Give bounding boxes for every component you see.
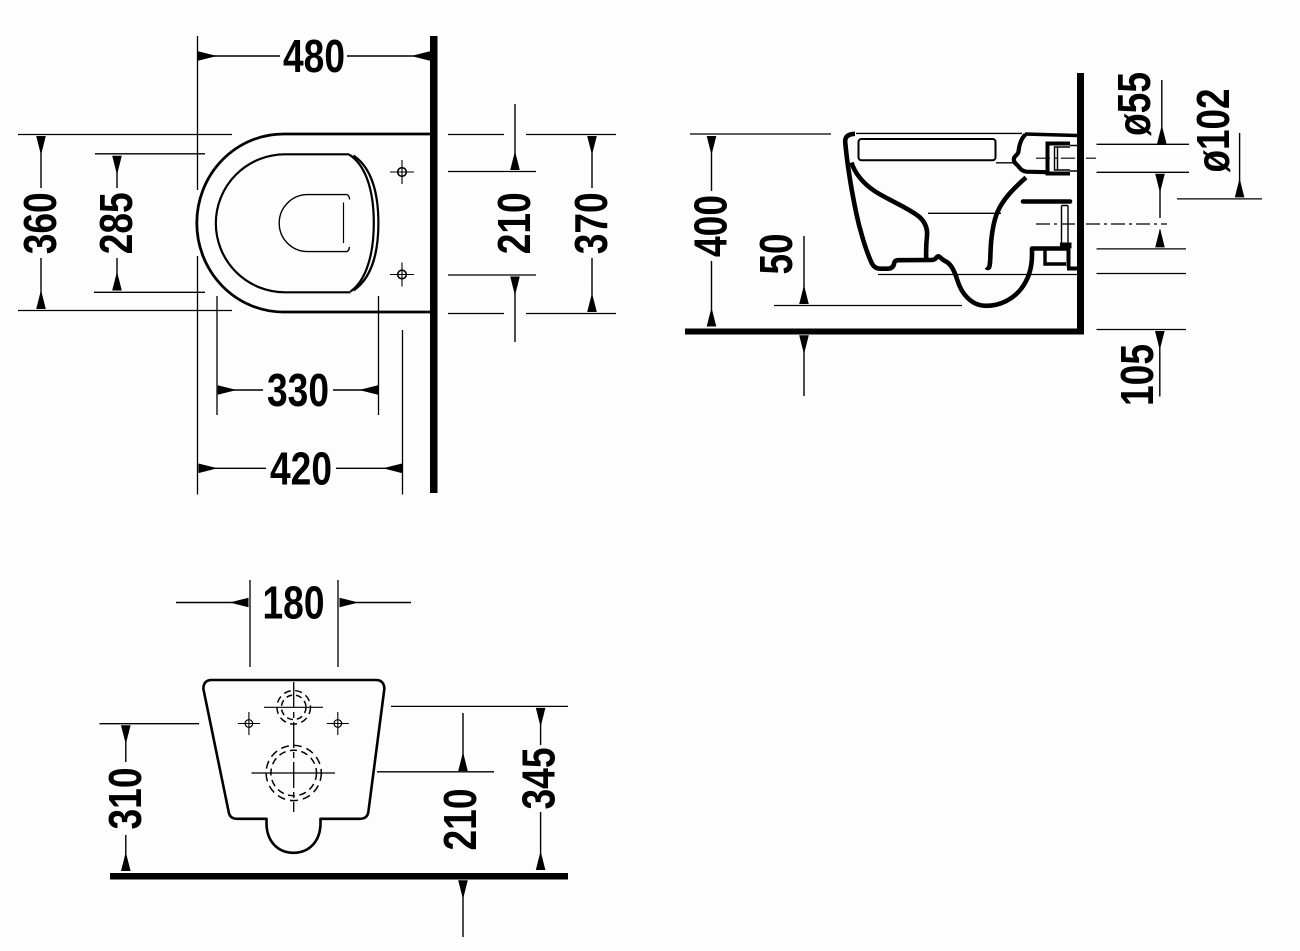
svg-text:330: 330 — [267, 364, 329, 416]
svg-text:210: 210 — [488, 192, 540, 254]
svg-text:285: 285 — [90, 192, 142, 254]
svg-text:180: 180 — [263, 577, 325, 629]
svg-text:345: 345 — [513, 748, 565, 810]
svg-text:420: 420 — [270, 442, 332, 494]
svg-text:ø55: ø55 — [1108, 72, 1160, 136]
svg-text:310: 310 — [99, 768, 151, 830]
svg-text:480: 480 — [283, 30, 345, 82]
svg-text:400: 400 — [685, 195, 737, 257]
svg-text:370: 370 — [565, 192, 617, 254]
svg-text:360: 360 — [14, 192, 66, 254]
svg-text:210: 210 — [434, 789, 486, 851]
svg-text:50: 50 — [750, 234, 802, 275]
svg-text:ø102: ø102 — [1187, 89, 1239, 173]
svg-text:105: 105 — [1111, 344, 1163, 406]
